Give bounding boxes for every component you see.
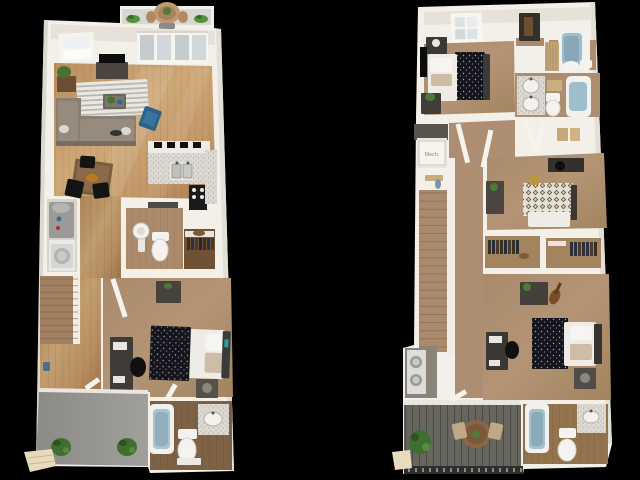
svg-text:Mech.: Mech. bbox=[425, 152, 440, 158]
